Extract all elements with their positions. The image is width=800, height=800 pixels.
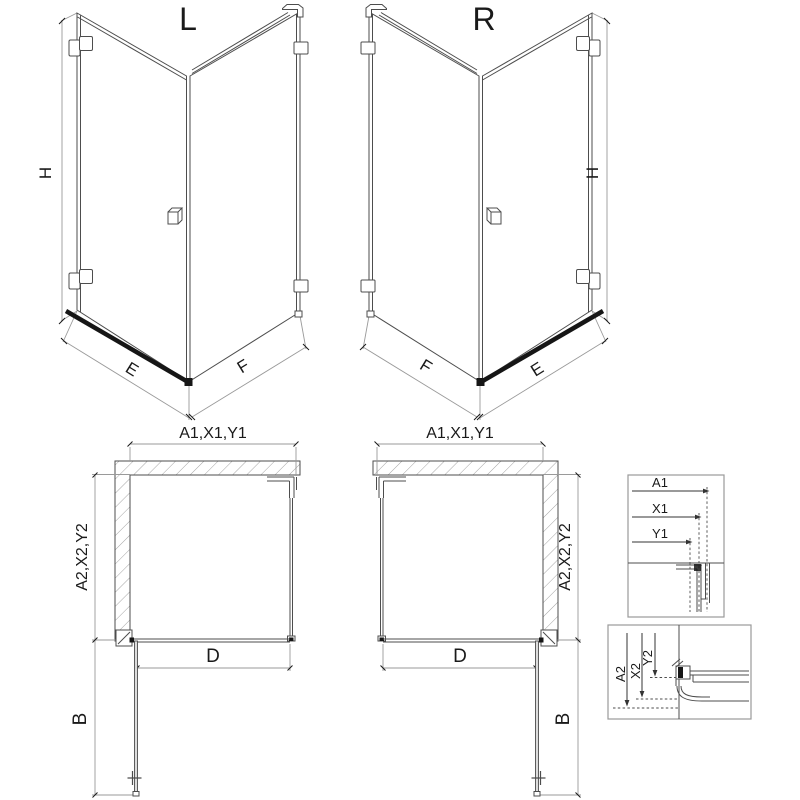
dim-label-B: B [553,713,574,726]
iso-view-left: L H E F [36,1,309,420]
dim-label-B: B [70,713,91,726]
dim-label-D: D [453,646,467,667]
variant-title-left: L [179,1,197,37]
detail-floor-profile: A2 X2 Y2 [608,625,751,719]
dim-label-H: H [36,167,55,179]
dim-label-D: D [206,646,220,667]
dim-label-A1X1Y1: A1,X1,Y1 [426,425,494,442]
detail-wall-profile: A1 X1 Y1 [628,475,724,617]
dim-label-E: E [122,358,142,380]
detail-label-A1: A1 [652,475,668,490]
detail-label-Y1: Y1 [652,526,668,541]
iso-view-right: R H E F [360,1,610,420]
dim-label-F: F [234,355,253,377]
dim-label-E: E [527,358,547,380]
dim-label-F: F [416,355,435,377]
plan-view-right: A1,X1,Y1 A2,X2,Y2 D B [373,425,581,798]
detail-label-X1: X1 [652,501,668,516]
detail-label-Y2: Y2 [640,650,655,666]
plan-view-left: A1,X1,Y1 A2,X2,Y2 D B [70,425,300,798]
shower-enclosure-diagram: L H E F R H E F A1,X1,Y1 A2,X2,Y2 D B A1… [0,0,800,800]
wall-section [115,461,300,641]
dim-label-A1X1Y1: A1,X1,Y1 [179,425,247,442]
dim-label-H: H [583,167,602,179]
technical-drawing-page: L H E F R H E F A1,X1,Y1 A2,X2,Y2 D B A1… [0,0,800,800]
dim-label-A2X2Y2: A2,X2,Y2 [74,523,91,591]
detail-label-A2: A2 [613,666,628,682]
dim-label-A2X2Y2: A2,X2,Y2 [557,523,574,591]
variant-title-right: R [472,1,495,37]
wall-section [373,461,558,641]
